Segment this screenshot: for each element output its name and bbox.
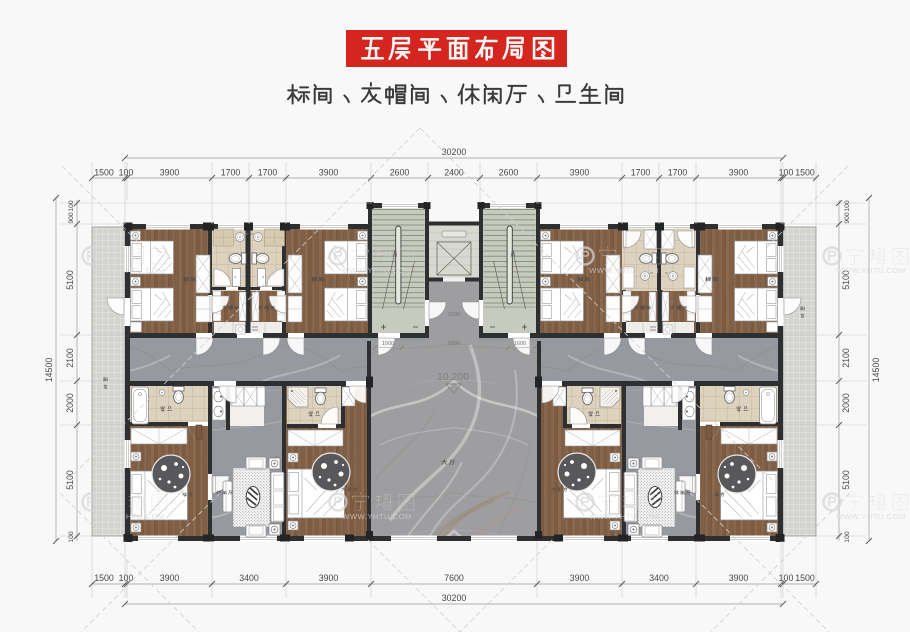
svg-text:100: 100: [68, 200, 75, 212]
svg-text:1500: 1500: [795, 168, 815, 178]
svg-text:14500: 14500: [871, 358, 881, 383]
svg-text:3900: 3900: [570, 573, 590, 583]
svg-text:900: 900: [68, 212, 75, 224]
svg-text:1500: 1500: [94, 168, 114, 178]
svg-text:100: 100: [844, 200, 851, 212]
svg-text:3900: 3900: [160, 573, 180, 583]
svg-text:10.200: 10.200: [437, 371, 469, 383]
svg-text:1700: 1700: [668, 168, 688, 178]
svg-text:100: 100: [779, 573, 794, 583]
svg-text:100: 100: [119, 168, 134, 178]
svg-text:1700: 1700: [221, 168, 241, 178]
svg-text:1500: 1500: [94, 573, 114, 583]
svg-text:3400: 3400: [649, 573, 669, 583]
svg-text:2200: 2200: [448, 312, 460, 318]
svg-text:100: 100: [119, 573, 134, 583]
svg-text:1600: 1600: [514, 341, 526, 347]
svg-text:3400: 3400: [239, 573, 259, 583]
svg-text:7600: 7600: [444, 573, 464, 583]
svg-text:1700: 1700: [631, 168, 651, 178]
svg-text:14500: 14500: [44, 358, 54, 383]
svg-text:5100: 5100: [65, 470, 75, 490]
svg-text:1700: 1700: [258, 168, 278, 178]
svg-text:3900: 3900: [729, 168, 749, 178]
svg-text:100: 100: [779, 168, 794, 178]
svg-text:2100: 2100: [841, 348, 851, 368]
svg-text:2600: 2600: [390, 168, 410, 178]
svg-text:1000: 1000: [382, 341, 394, 347]
svg-text:2600: 2600: [499, 168, 519, 178]
svg-text:5100: 5100: [65, 270, 75, 290]
svg-text:2000: 2000: [841, 393, 851, 413]
svg-text:100: 100: [844, 531, 851, 543]
svg-text:3900: 3900: [319, 573, 339, 583]
svg-text:900: 900: [844, 212, 851, 224]
svg-text:1500: 1500: [795, 573, 815, 583]
svg-text:WWW.YHTU.COM: WWW.YHTU.COM: [95, 266, 165, 275]
svg-text:2400: 2400: [444, 168, 464, 178]
svg-text:3900: 3900: [729, 573, 749, 583]
svg-text:5100: 5100: [841, 470, 851, 490]
svg-text:30200: 30200: [442, 593, 467, 603]
svg-text:3900: 3900: [319, 168, 339, 178]
svg-text:2100: 2100: [65, 348, 75, 368]
svg-text:3900: 3900: [160, 168, 180, 178]
svg-text:5200: 5200: [448, 341, 460, 347]
svg-text:2000: 2000: [65, 393, 75, 413]
svg-text:3900: 3900: [570, 168, 590, 178]
svg-text:100: 100: [68, 531, 75, 543]
svg-text:30200: 30200: [442, 147, 467, 157]
